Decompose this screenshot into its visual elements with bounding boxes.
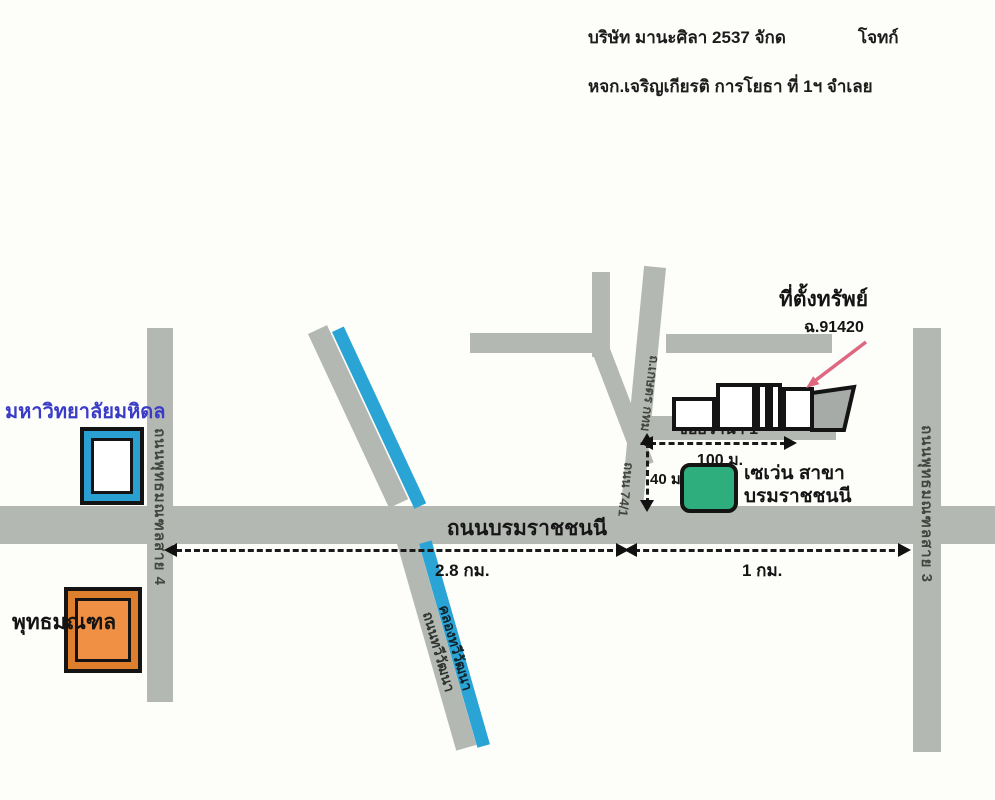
measure-line-2-8km [176, 549, 622, 552]
building-3 [756, 383, 769, 431]
arrowhead-right-icon [898, 543, 911, 557]
map-canvas: บริษัท มานะศิลา 2537 จักด โจทก์ หจก.เจริ… [0, 0, 995, 800]
university-marker [80, 427, 144, 505]
measure-line-1km [634, 549, 904, 552]
building-2 [716, 383, 756, 431]
property-pointer-arrow-icon [792, 336, 876, 396]
university-marker-inner [91, 438, 133, 494]
arrowhead-down-icon [640, 500, 654, 512]
road-label-sai3: ถนนพุทธมณฑลสาย 3 [915, 354, 939, 654]
measure-label-2-8km: 2.8 กม. [435, 557, 490, 584]
measure-line-100m [650, 442, 786, 445]
arrowhead-left-icon [164, 543, 177, 557]
arrowhead-left-icon [624, 543, 637, 557]
park-label: พุทธมณฑล [12, 606, 116, 639]
arrowhead-up-icon [640, 433, 654, 445]
header-defendant-line: หจก.เจริญเกียรติ การโยธา ที่ 1ฯ จำเลย [588, 73, 873, 100]
road-thawi-watthana-upper [308, 325, 408, 508]
building-1 [672, 397, 716, 431]
seven-eleven-label-line2: บรมราชชนนี [744, 481, 851, 511]
university-label: มหาวิทยาลัยมหิดล [5, 395, 166, 427]
arrowhead-right-icon [784, 436, 797, 450]
road-access-upper-west [592, 272, 610, 357]
road-branch-west [470, 333, 608, 353]
building-4 [769, 383, 782, 431]
header-plaintiff-name: บริษัท มานะศิลา 2537 จักด [588, 24, 786, 51]
header-plaintiff-role: โจทก์ [858, 24, 899, 51]
measure-label-1km: 1 กม. [742, 557, 782, 584]
measure-line-40m [646, 442, 649, 504]
measure-label-40m: 40 ม. [650, 467, 685, 491]
property-title: ที่ตั้งทรัพย์ [779, 283, 868, 316]
